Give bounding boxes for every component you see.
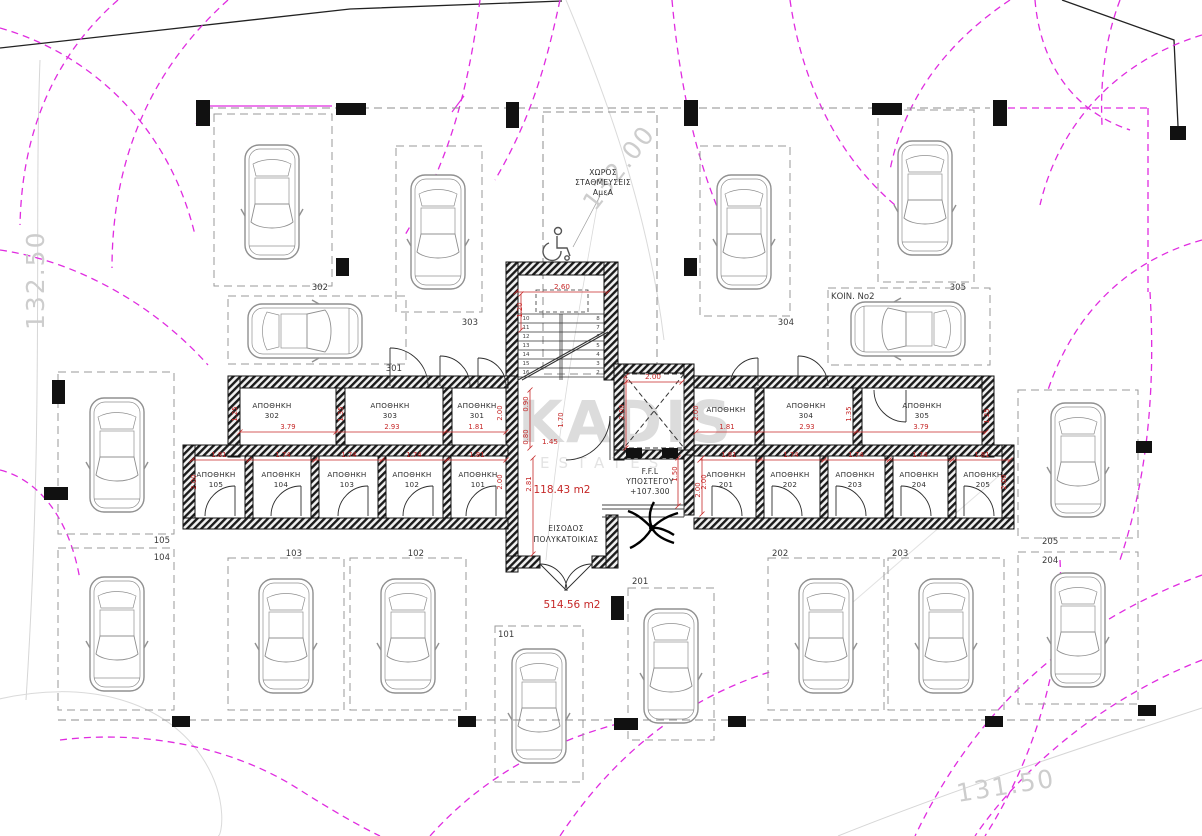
dimension-label: 2.60: [554, 282, 570, 291]
parking-bay: 301: [228, 296, 406, 374]
storage-room-label: ΑΠΟΘΗΚΗ: [770, 470, 809, 479]
elevator-door-jamb: [626, 448, 642, 458]
parking-bay-number: 103: [286, 549, 302, 559]
parking-bay: 305: [878, 110, 974, 293]
site-edge-magenta-lines: [196, 96, 464, 124]
dimension-label: 1.74: [406, 451, 421, 459]
storage-room-number: 205: [976, 480, 991, 489]
parking-bay-number: 301: [386, 364, 402, 374]
parking-bay-number: 304: [778, 318, 794, 328]
storage-room-number: 105: [209, 480, 224, 489]
dimension-label: 1.74: [912, 451, 927, 459]
stair-step-number: 13: [523, 343, 530, 349]
storage-room-number: 202: [783, 480, 798, 489]
parking-bay-number: 205: [1042, 537, 1058, 547]
staircase: [518, 290, 608, 380]
storage-room-label: ΑΠΟΘΗΚΗ: [706, 405, 745, 414]
dimension-label: 0.90: [522, 396, 530, 411]
total-area-label: 514.56 m2: [544, 599, 601, 611]
parking-bay: 102: [350, 549, 466, 710]
car-icon: [508, 649, 570, 763]
dimension-label: 2.93: [384, 423, 399, 431]
dimension-label: 2.00: [645, 372, 661, 381]
car-icon: [894, 141, 956, 255]
storage-room-number: 102: [405, 480, 420, 489]
parking-bay-number: 203: [892, 549, 908, 559]
storage-room-number: 304: [799, 411, 814, 420]
amea-label-line3: ΑμεΑ: [593, 188, 614, 197]
car-icon: [851, 298, 965, 360]
stair-step-number: 3: [596, 361, 600, 367]
stair-step-number: 6: [596, 334, 600, 340]
car-icon: [713, 175, 775, 289]
dimension-label: 1.74: [341, 451, 356, 459]
dimension-label: 2.00: [496, 405, 504, 420]
car-icon: [1047, 403, 1109, 517]
wheelchair-icon: [543, 228, 570, 261]
dimension-label: 1.81: [719, 423, 734, 431]
elevator-door-jamb: [662, 448, 678, 458]
dimension-label: 3.79: [280, 423, 295, 431]
stair-step-number: 4: [596, 352, 600, 358]
storage-room-label: ΑΠΟΘΗΚΗ: [261, 470, 300, 479]
car-icon: [248, 300, 362, 362]
ffl-label-line3: +107.300: [630, 487, 670, 496]
parking-bay-number: 201: [632, 577, 648, 587]
stair-step-number: 8: [596, 316, 600, 322]
parking-bay: 302: [214, 114, 332, 293]
stair-step-number: 2: [596, 370, 600, 376]
dimension-label: 2.00: [496, 474, 504, 489]
dimension-label: 1.81: [469, 451, 484, 459]
car-icon: [377, 579, 439, 693]
dimension-label: 2.93: [799, 423, 814, 431]
stair-step-number: 12: [523, 334, 530, 340]
storage-room-number: 103: [340, 480, 355, 489]
storage-room-label: ΑΠΟΘΗΚΗ: [457, 401, 496, 410]
stair-step-number: 15: [523, 361, 530, 367]
stair-step-number: 16: [523, 370, 530, 376]
stair-step-number: 7: [596, 325, 600, 331]
parking-bay: 205: [1018, 390, 1138, 547]
storage-room-number: 201: [719, 480, 734, 489]
storage-room-label: ΑΠΟΘΗΚΗ: [252, 401, 291, 410]
floor-plan-canvas: 3023033013043051051041031021012012022032…: [0, 0, 1202, 836]
car-icon: [86, 577, 148, 691]
dimension-label: 2.00: [618, 404, 626, 419]
car-icon: [795, 579, 857, 693]
dimension-label: 1.74: [783, 451, 798, 459]
dimension-label: 0.80: [522, 429, 530, 444]
parking-bay: 304: [700, 146, 794, 328]
parking-bay: 103: [228, 549, 344, 710]
parking-bay-number: 204: [1042, 556, 1058, 566]
storage-room-number: 104: [274, 480, 289, 489]
car-icon: [241, 145, 303, 259]
storage-room-label: ΑΠΟΘΗΚΗ: [196, 470, 235, 479]
storage-room-label: ΑΠΟΘΗΚΗ: [370, 401, 409, 410]
ffl-label-line2: ΥΠΟΣΤΕΓΟΥ: [625, 477, 674, 486]
dimension-label: 1.81: [468, 423, 483, 431]
parking-bay-number: 303: [462, 318, 478, 328]
parking-bay: 104: [58, 548, 174, 710]
storage-room-number: 203: [848, 480, 863, 489]
parking-bay: 204: [1018, 552, 1138, 704]
dimension-label: 2.00: [694, 482, 702, 497]
stair-step-number: 10: [523, 316, 530, 322]
site-level-label: 132.50: [21, 231, 50, 330]
storage-room-label: ΑΠΟΘΗΚΗ: [392, 470, 431, 479]
dimension-label: 1.25: [231, 406, 239, 421]
storage-room-label: ΑΠΟΘΗΚΗ: [899, 470, 938, 479]
parking-bay-number: 101: [498, 630, 514, 640]
dimension-label: 2.00: [190, 474, 198, 489]
car-icon: [86, 398, 148, 512]
car-icon: [1047, 573, 1109, 687]
parking-bay-number: 105: [154, 536, 170, 546]
basement-floor-plan-drawing: 3023033013043051051041031021012012022032…: [0, 0, 1202, 836]
car-icon: [915, 579, 977, 693]
storage-room-number: 302: [265, 411, 280, 420]
ffl-label-line1: F.F.L: [642, 467, 659, 476]
dimension-label: 1.74: [848, 451, 863, 459]
storage-room-label: ΑΠΟΘΗΚΗ: [963, 470, 1002, 479]
storage-room-number: 301: [470, 411, 485, 420]
dimension-label: 2.00: [1000, 474, 1008, 489]
storage-room-number: 204: [912, 480, 927, 489]
storage-room-label: ΑΠΟΘΗΚΗ: [706, 470, 745, 479]
storage-room-number: 303: [383, 411, 398, 420]
dimension-label: 3.79: [913, 423, 928, 431]
parking-bay: 101: [495, 626, 583, 782]
parking-bay: 201: [628, 577, 714, 740]
dimension-label: 1.45: [542, 437, 558, 446]
storage-room-number: 101: [471, 480, 486, 489]
dimension-label: 1.81: [211, 451, 226, 459]
parking-bay-number: 202: [772, 549, 788, 559]
storage-room-number: 305: [915, 411, 930, 420]
amea-label-line1: ΧΩΡΟΣ: [589, 168, 617, 177]
parking-bay: 303: [396, 146, 482, 328]
storage-room-label: ΑΠΟΘΗΚΗ: [902, 401, 941, 410]
car-icon: [407, 175, 469, 289]
parking-bay: 202: [768, 549, 884, 710]
parking-bay-number: 104: [154, 553, 170, 563]
storage-room-label: ΑΠΟΘΗΚΗ: [835, 470, 874, 479]
storage-room-label: ΑΠΟΘΗΚΗ: [786, 401, 825, 410]
parking-bay: 203: [888, 549, 1004, 710]
koin-bay-label: ΚΟΙΝ. Νο2: [831, 292, 875, 302]
entrance-label-line1: ΕΙΣΟΔΟΣ: [548, 524, 583, 533]
car-icon: [640, 609, 702, 723]
dimension-label: 1.81: [974, 451, 989, 459]
dimension-label: 2.81: [525, 476, 533, 491]
stair-step-number: 14: [523, 352, 530, 358]
amea-label-line2: ΣΤΑΘΜΕΥΣΕΙΣ: [575, 178, 631, 187]
inner-area-label: 118.43 m2: [534, 484, 591, 496]
dimension-label: 1.35: [337, 406, 345, 421]
storage-room-label: ΑΠΟΘΗΚΗ: [327, 470, 366, 479]
site-level-label: 131.50: [954, 764, 1057, 808]
parking-bay-number: 102: [408, 549, 424, 559]
stair-step-number: 5: [596, 343, 600, 349]
dimension-label: 1.74: [275, 451, 290, 459]
car-icon: [255, 579, 317, 693]
dimension-label: 1.70: [557, 412, 565, 427]
stair-step-number: 11: [523, 325, 530, 331]
dimension-label: 1.35: [845, 406, 853, 421]
parking-bay-number: 302: [312, 283, 328, 293]
dimension-label: 1.25: [983, 408, 991, 423]
storage-room-label: ΑΠΟΘΗΚΗ: [458, 470, 497, 479]
dimension-label: 2.00: [692, 405, 700, 420]
entrance-label-line2: ΠΟΛΥΚΑΤΟΙΚΙΑΣ: [534, 535, 599, 544]
dimension-label: 1.81: [721, 451, 736, 459]
parking-bay: 105: [58, 372, 174, 546]
